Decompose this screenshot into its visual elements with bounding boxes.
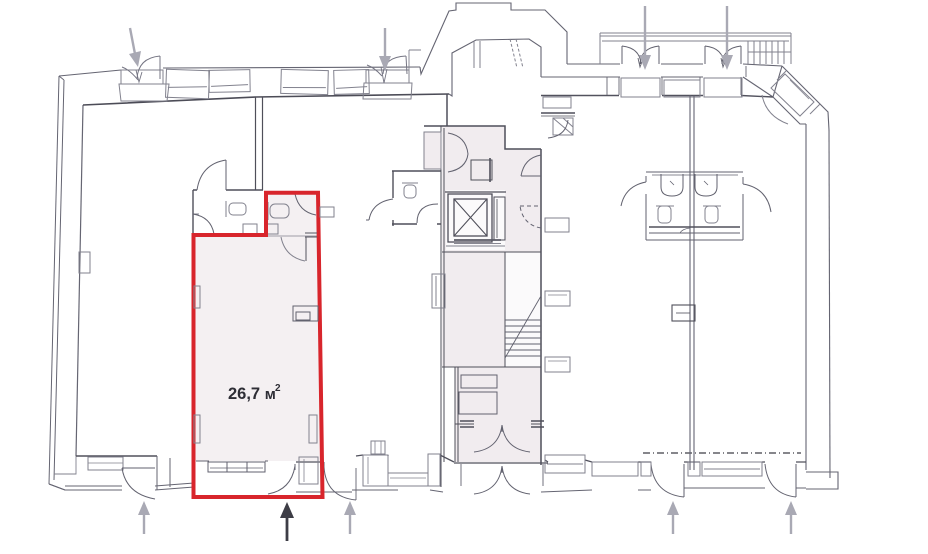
svg-text:26,7 м: 26,7 м bbox=[228, 385, 276, 403]
svg-text:2: 2 bbox=[275, 383, 281, 394]
